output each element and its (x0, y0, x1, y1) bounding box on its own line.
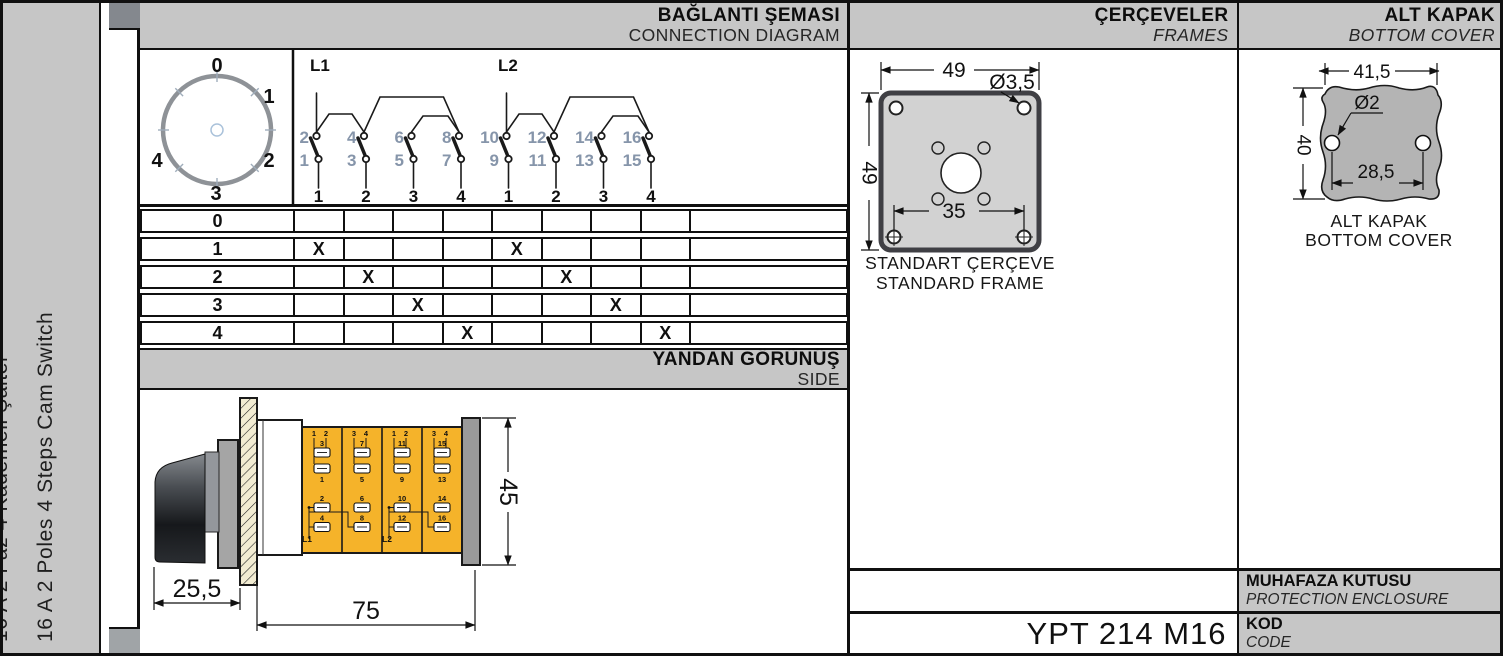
row-label: 4 (142, 323, 295, 343)
table-cell (444, 267, 494, 287)
table-cell (642, 295, 692, 315)
terminal-number: 4 (347, 128, 357, 147)
table-cell (345, 323, 395, 343)
dim-cover-spacing: 28,5 (1358, 162, 1395, 183)
position-number: 2 (361, 187, 370, 205)
front-plate (218, 440, 238, 568)
header-connection: BAĞLANTI ŞEMASI CONNECTION DIAGRAM (140, 3, 848, 50)
column-divider-2 (1237, 3, 1240, 653)
table-cell: X (444, 323, 494, 343)
terminal-number: 13 (575, 151, 594, 170)
terminal-label: 3 (320, 439, 324, 448)
terminal-label: 7 (360, 439, 364, 448)
enclosure-row-line (847, 568, 1503, 571)
header-frames-tr: ÇERÇEVELER (1095, 5, 1229, 26)
terminal-label: 13 (438, 475, 446, 484)
terminal-number: 11 (529, 151, 547, 170)
frame-drawing: 49 Ø3,5 49 35 STANDART ÇERÇEVE STANDARD … (849, 50, 1238, 320)
table-cell (543, 239, 593, 259)
table-cell (642, 267, 692, 287)
l2-feed-label: L2 (382, 534, 392, 544)
header-connection-tr: BAĞLANTI ŞEMASI (658, 5, 840, 26)
table-cell: X (295, 239, 345, 259)
table-cell (394, 267, 444, 287)
cover-caption-tr: ALT KAPAK (1331, 211, 1428, 231)
cover-caption-en: BOTTOM COVER (1305, 230, 1453, 250)
cover-hole-right (1416, 136, 1431, 151)
table-row: 2 XX (140, 265, 848, 289)
enclosure-label-en: PROTECTION ENCLOSURE (1246, 591, 1448, 609)
dial-center-icon (211, 124, 223, 136)
table-cell (493, 267, 543, 287)
product-title-en: 16 A 2 Poles 4 Steps Cam Switch (34, 312, 58, 642)
frame-caption-tr: STANDART ÇERÇEVE (865, 253, 1055, 273)
diagram-bottom-line (140, 204, 848, 207)
terminal-label: 15 (438, 439, 446, 448)
terminal-number: 14 (575, 128, 594, 147)
connection-diagram: 0 1 2 3 4 L1 L2 (140, 50, 848, 205)
terminal-label: 10 (398, 494, 406, 503)
position-number: 3 (409, 187, 418, 205)
tiny-terminal: 3 (432, 429, 436, 438)
contact-diagram: L1 L2 (300, 56, 657, 205)
row-label: 3 (142, 295, 295, 315)
mounting-panel-hatch (240, 398, 257, 585)
table-cell: X (543, 267, 593, 287)
position-number: 4 (646, 187, 656, 205)
l1-feed-label: L1 (302, 534, 312, 544)
dial-pos-3: 3 (210, 183, 221, 205)
table-row: 0 (140, 209, 848, 233)
header-frames-en: FRAMES (1153, 26, 1228, 45)
terminal-label: 12 (398, 514, 406, 523)
terminal-number: 12 (528, 128, 547, 147)
table-filler (691, 239, 846, 259)
table-cell (592, 267, 642, 287)
dim-frame-hole: Ø3,5 (989, 71, 1035, 94)
table-row: 3 XX (140, 293, 848, 317)
table-cell (345, 211, 395, 231)
header-frames: ÇERÇEVELER FRAMES (850, 3, 1237, 50)
frame-caption-en: STANDARD FRAME (876, 273, 1044, 293)
tiny-terminal: 2 (404, 429, 408, 438)
position-number: 4 (456, 187, 466, 205)
position-number: 2 (551, 187, 560, 205)
terminal-number: 2 (300, 128, 309, 147)
table-cell (543, 323, 593, 343)
table-cell (493, 323, 543, 343)
terminal-label: 11 (398, 439, 406, 448)
table-cell (295, 211, 345, 231)
dim-height: 45 (494, 478, 522, 506)
header-bottom-cover-tr: ALT KAPAK (1384, 5, 1495, 26)
dim-knob: 25,5 (173, 575, 222, 603)
table-filler (691, 295, 846, 315)
terminal-number: 8 (442, 128, 451, 147)
terminal-label: 16 (438, 514, 446, 523)
side-view-drawing: 12 31 24 34 75 68 12 119 1012 34 1513 14… (140, 390, 848, 653)
dim-cover-width: 41,5 (1354, 62, 1391, 83)
terminal-label: 9 (400, 475, 404, 484)
bottom-cover-drawing: 41,5 Ø2 40 28,5 ALT KAPAK BOTTOM COVER (1237, 50, 1503, 290)
table-filler (691, 211, 846, 231)
row-label: 0 (142, 211, 295, 231)
position-number: 1 (314, 187, 323, 205)
table-cell (394, 239, 444, 259)
table-row: 1 XX (140, 237, 848, 261)
table-cell (295, 323, 345, 343)
table-filler (691, 323, 846, 343)
code-label-cell: KOD CODE (1239, 614, 1503, 653)
table-cell (592, 211, 642, 231)
table-cell: X (592, 295, 642, 315)
table-cell (592, 323, 642, 343)
terminal-number: 7 (442, 151, 451, 170)
product-title-tr: 16 A 2 Faz 4 Kademeli Şalter (0, 354, 13, 642)
enclosure-label-cell: MUHAFAZA KUTUSU PROTECTION ENCLOSURE (1239, 571, 1503, 612)
column-divider-1 (847, 3, 850, 653)
table-cell (444, 211, 494, 231)
terminal-number: 15 (623, 151, 642, 170)
header-bottom-cover-en: BOTTOM COVER (1349, 26, 1495, 45)
code-label-tr: KOD (1246, 615, 1283, 634)
dim-body: 75 (352, 597, 380, 625)
header-bottom-cover: ALT KAPAK BOTTOM COVER (1237, 3, 1503, 50)
table-cell (444, 295, 494, 315)
terminal-number: 10 (480, 128, 499, 147)
terminal-number: 16 (623, 128, 642, 147)
code-value: YPT 214 M16 (1027, 616, 1227, 652)
table-cell (592, 239, 642, 259)
handle-knob (155, 454, 205, 563)
tiny-terminal: 2 (324, 429, 328, 438)
terminal-label: 14 (438, 494, 447, 503)
l1-label: L1 (310, 56, 330, 75)
table-cell (543, 211, 593, 231)
table-cell (493, 211, 543, 231)
terminal-number: 5 (395, 151, 404, 170)
tiny-terminal: 1 (312, 429, 316, 438)
dim-cover-height: 40 (1293, 134, 1314, 155)
position-number: 3 (599, 187, 608, 205)
l2-label: L2 (498, 56, 518, 75)
table-cell (543, 295, 593, 315)
cover-hole-left (1325, 136, 1340, 151)
terminal-label: 6 (360, 494, 364, 503)
dial-pos-4: 4 (151, 150, 163, 172)
dim-frame-width: 49 (942, 59, 965, 82)
dial-pos-1: 1 (263, 86, 274, 108)
dim-cover-hole: Ø2 (1354, 93, 1379, 114)
tiny-terminal: 3 (352, 429, 356, 438)
table-cell (345, 295, 395, 315)
table-cell (642, 211, 692, 231)
table-filler (691, 267, 846, 287)
terminal-label: 5 (360, 475, 364, 484)
dial-pos-0: 0 (211, 55, 222, 77)
terminal-label: 8 (360, 514, 364, 523)
table-cell (394, 211, 444, 231)
dim-frame-center: 35 (942, 200, 965, 223)
enclosure-label-tr: MUHAFAZA KUTUSU (1246, 572, 1411, 591)
table-cell (295, 267, 345, 287)
table-cell (642, 239, 692, 259)
table-cell: X (394, 295, 444, 315)
shaft-housing (257, 420, 302, 555)
table-cell (345, 239, 395, 259)
table-cell: X (493, 239, 543, 259)
code-value-cell: YPT 214 M16 (850, 614, 1237, 653)
tiny-terminal: 1 (392, 429, 396, 438)
catalog-page: 16 A 2 Faz 4 Kademeli Şalter 16 A 2 Pole… (0, 0, 1503, 656)
header-side-view-en: SIDE (798, 370, 840, 389)
terminal-number: 6 (395, 128, 404, 147)
table-cell: X (345, 267, 395, 287)
shaft-hole (941, 153, 981, 193)
header-connection-en: CONNECTION DIAGRAM (629, 26, 840, 45)
table-cell: X (642, 323, 692, 343)
bottom-corner-square (109, 627, 140, 656)
header-side-view-tr: YANDAN GÖRÜNÜŞ (652, 349, 840, 370)
code-label-en: CODE (1246, 634, 1291, 652)
row-label: 1 (142, 239, 295, 259)
table-cell (493, 295, 543, 315)
end-cap (462, 418, 480, 565)
header-side-view: YANDAN GÖRÜNÜŞ SIDE (140, 348, 848, 390)
terminal-number: 1 (300, 151, 309, 170)
row-label: 2 (142, 267, 295, 287)
knob-collar (205, 452, 219, 532)
table-cell (295, 295, 345, 315)
top-corner-square (109, 0, 140, 30)
terminal-number: 3 (347, 151, 356, 170)
code-row-line (847, 611, 1503, 614)
table-cell (444, 239, 494, 259)
terminal-number: 9 (490, 151, 499, 170)
terminal-label: 1 (320, 475, 324, 484)
position-number: 1 (504, 187, 513, 205)
table-cell (394, 323, 444, 343)
dial-pos-2: 2 (263, 150, 274, 172)
terminal-label: 2 (320, 494, 324, 503)
dim-frame-height: 49 (858, 161, 881, 184)
table-row: 4 XX (140, 321, 848, 345)
dial-diagram: 0 1 2 3 4 (151, 50, 293, 205)
